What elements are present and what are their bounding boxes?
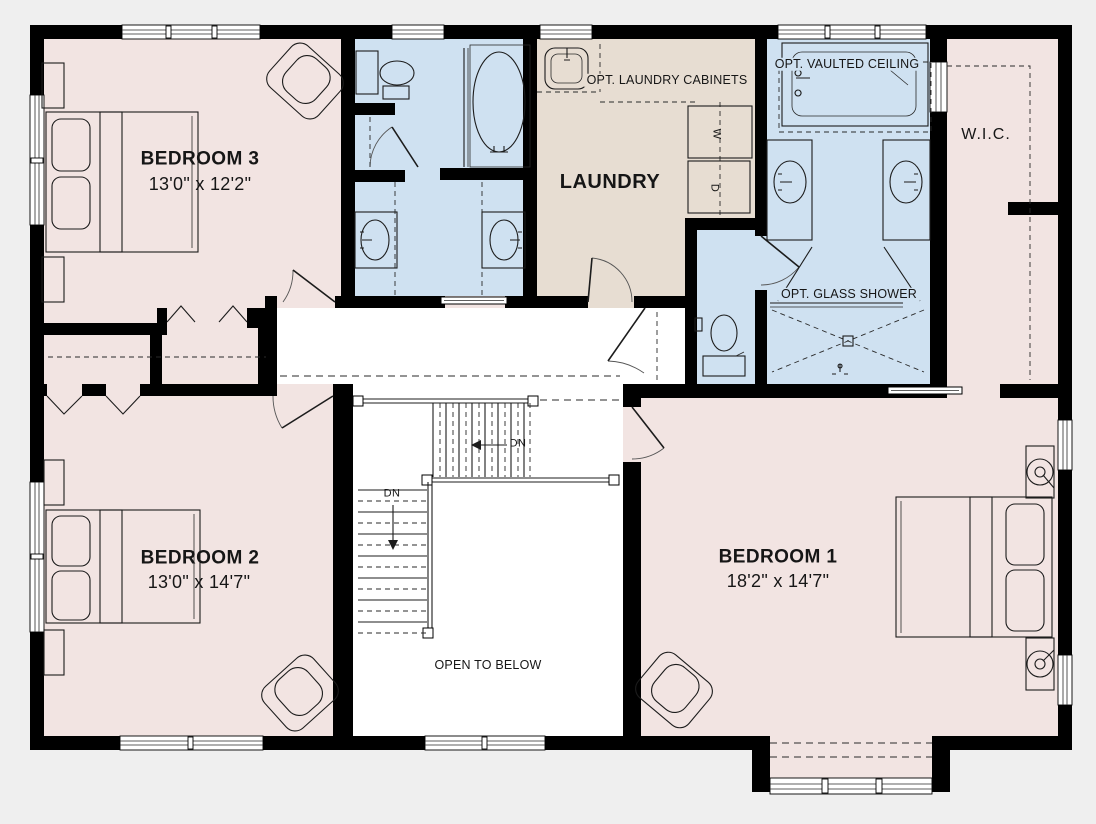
laundry-door-opening [588, 296, 634, 308]
hallway-floor [277, 308, 685, 384]
hall-bath-pocket-door [441, 297, 507, 304]
bedroom2-dimensions: 13'0" x 14'7" [148, 573, 251, 591]
laundry-label: LAUNDRY [560, 172, 661, 192]
dryer-label: D [709, 184, 720, 192]
opt-laundry-cabinets-label: OPT. LAUNDRY CABINETS [584, 74, 751, 87]
opt-vaulted-ceiling-label: OPT. VAULTED CEILING [772, 58, 923, 71]
bedroom3-label: BEDROOM 3 [141, 150, 260, 169]
bedroom2-door-opening [277, 384, 333, 396]
down-label-lower: DN [384, 489, 401, 500]
opt-glass-shower-label: OPT. GLASS SHOWER [778, 288, 920, 301]
bedroom3-dimensions: 13'0" x 12'2" [149, 175, 252, 193]
window-bay-front [770, 778, 932, 794]
window-master-bath-top [778, 25, 926, 39]
down-label-upper: DN [510, 439, 527, 450]
window-hall-bath-top [392, 25, 444, 39]
bedroom1-dimensions: 18'2" x 14'7" [727, 572, 830, 590]
bedroom1-label: BEDROOM 1 [719, 548, 838, 567]
stairwell-floor [353, 384, 623, 736]
linen-closet-floor [641, 308, 685, 384]
open-to-below-label: OPEN TO BELOW [431, 659, 544, 672]
window-bedroom1-right-lower [1058, 655, 1072, 705]
window-bedroom2-bottom [120, 736, 263, 750]
bedroom2-label: BEDROOM 2 [141, 549, 260, 568]
master-bath-floor [767, 39, 930, 384]
window-bedroom2-left [30, 482, 44, 632]
opening-master-bath-wic [930, 62, 947, 112]
floor-plan-page: BEDROOM 3 13'0" x 12'2" BEDROOM 2 13'0" … [0, 0, 1096, 824]
window-bedroom3-top [122, 25, 260, 39]
window-stairwell-bottom [425, 736, 545, 750]
washer-label: W [711, 129, 722, 140]
window-bedroom3-left [30, 95, 44, 225]
window-bedroom1-right-upper [1058, 420, 1072, 470]
wic-label: W.I.C. [961, 127, 1011, 143]
toilet-room-floor [697, 230, 755, 384]
window-laundry-top [540, 25, 592, 39]
master-bath-pocket-door [888, 387, 962, 394]
floor-plan-drawing [0, 0, 1096, 824]
toilet-room-door-opening [755, 236, 767, 290]
